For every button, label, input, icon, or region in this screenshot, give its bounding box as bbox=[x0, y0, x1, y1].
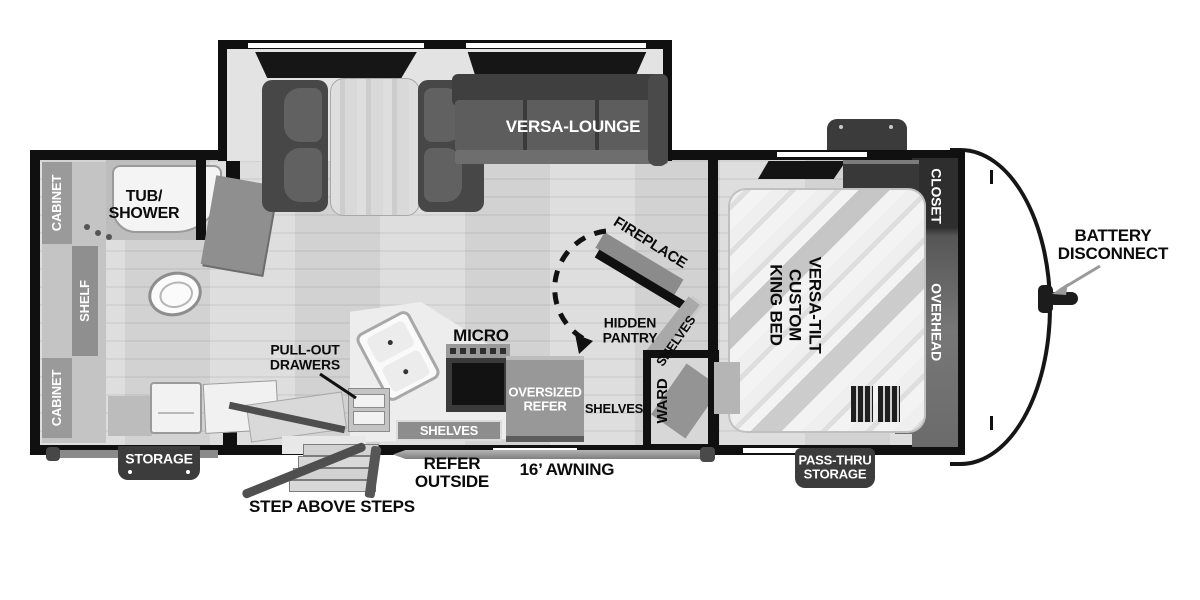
hitch-bar bbox=[1051, 292, 1078, 305]
label-oversized-refer: OVERSIZED REFER bbox=[508, 385, 581, 412]
range-grate bbox=[446, 344, 510, 358]
slide-window-left bbox=[250, 52, 422, 78]
label-shelves-badge: SHELVES bbox=[420, 424, 478, 438]
sofa-front-lip bbox=[455, 150, 668, 164]
stove-body bbox=[446, 358, 510, 412]
label-cabinet-top: CABINET bbox=[50, 175, 64, 231]
front-cap-tick-top bbox=[990, 170, 993, 184]
front-cap-tick-bottom bbox=[990, 416, 993, 430]
vanity-drawer-line bbox=[158, 412, 194, 414]
label-pull-out-drawers: PULL-OUT DRAWERS bbox=[270, 342, 340, 371]
floorplan: CABINET SHELF CABINET TUB/ SHOWER VERSA-… bbox=[0, 0, 1200, 600]
label-tub-shower: TUB/ SHOWER bbox=[109, 189, 180, 223]
dinette-table bbox=[330, 78, 420, 216]
slide-window-slot-left bbox=[248, 43, 424, 48]
bracket-screw-left bbox=[839, 125, 843, 129]
label-storage: STORAGE bbox=[125, 452, 193, 467]
pull-out-drawers-unit bbox=[348, 388, 390, 432]
slide-window-slot-right bbox=[466, 43, 646, 48]
label-cabinet-bottom: CABINET bbox=[50, 370, 64, 426]
bracket-screw-right bbox=[889, 125, 893, 129]
label-hidden-pantry: HIDDEN PANTRY bbox=[603, 315, 658, 344]
front-cap bbox=[950, 148, 1052, 466]
toilet-seat bbox=[157, 278, 196, 311]
bed-step-2 bbox=[878, 386, 900, 422]
sink-drain-top bbox=[387, 339, 394, 346]
sofa-armrest bbox=[648, 74, 668, 166]
label-overhead: OVERHEAD bbox=[929, 283, 944, 361]
label-closet: CLOSET bbox=[929, 168, 944, 224]
sink-drain-bottom bbox=[402, 368, 409, 375]
storage-dot-right bbox=[186, 470, 190, 474]
exterior-bracket bbox=[827, 119, 907, 153]
bench-cushion bbox=[284, 148, 322, 202]
storage-dot-left bbox=[128, 470, 132, 474]
stove-glass bbox=[452, 363, 504, 405]
awning-end-cap bbox=[700, 447, 715, 462]
label-awning: 16’ AWNING bbox=[520, 461, 615, 479]
battery-arrow-line bbox=[1060, 266, 1100, 290]
vanity-counter bbox=[108, 396, 152, 436]
drawer-face-1 bbox=[353, 394, 385, 408]
dinette-bench-left bbox=[262, 80, 328, 212]
drawer-face-2 bbox=[353, 411, 385, 425]
rear-rail-cap bbox=[46, 447, 60, 461]
tub-faucet-dot3 bbox=[106, 234, 112, 240]
tub-faucet-dot1 bbox=[84, 224, 90, 230]
label-step-above-steps: STEP ABOVE STEPS bbox=[249, 498, 415, 516]
label-ward: WARD bbox=[655, 378, 671, 423]
bench-cushion bbox=[284, 88, 322, 142]
vanity-sink bbox=[150, 382, 202, 434]
label-battery-disconnect: BATTERY DISCONNECT bbox=[1058, 227, 1168, 263]
grate-dots bbox=[450, 348, 506, 354]
label-versa-lounge: VERSA-LOUNGE bbox=[506, 118, 641, 136]
bedroom-nightstand bbox=[714, 362, 740, 414]
label-shelves-small: SHELVES bbox=[585, 402, 643, 416]
label-shelf: SHELF bbox=[78, 280, 92, 322]
tub-room-wall bbox=[196, 160, 206, 240]
bedroom-window-top bbox=[777, 152, 867, 157]
label-refer-outside: REFER OUTSIDE bbox=[415, 455, 489, 491]
bed-step-1 bbox=[851, 386, 873, 422]
bedroom-window-shade bbox=[758, 161, 846, 179]
label-king-bed: VERSA-TILT CUSTOM KING BED bbox=[766, 257, 825, 354]
label-pass-thru: PASS-THRU STORAGE bbox=[798, 453, 871, 480]
step-tread-4 bbox=[289, 480, 376, 492]
label-micro: MICRO bbox=[453, 327, 509, 345]
tub-faucet-dot2 bbox=[95, 230, 101, 236]
